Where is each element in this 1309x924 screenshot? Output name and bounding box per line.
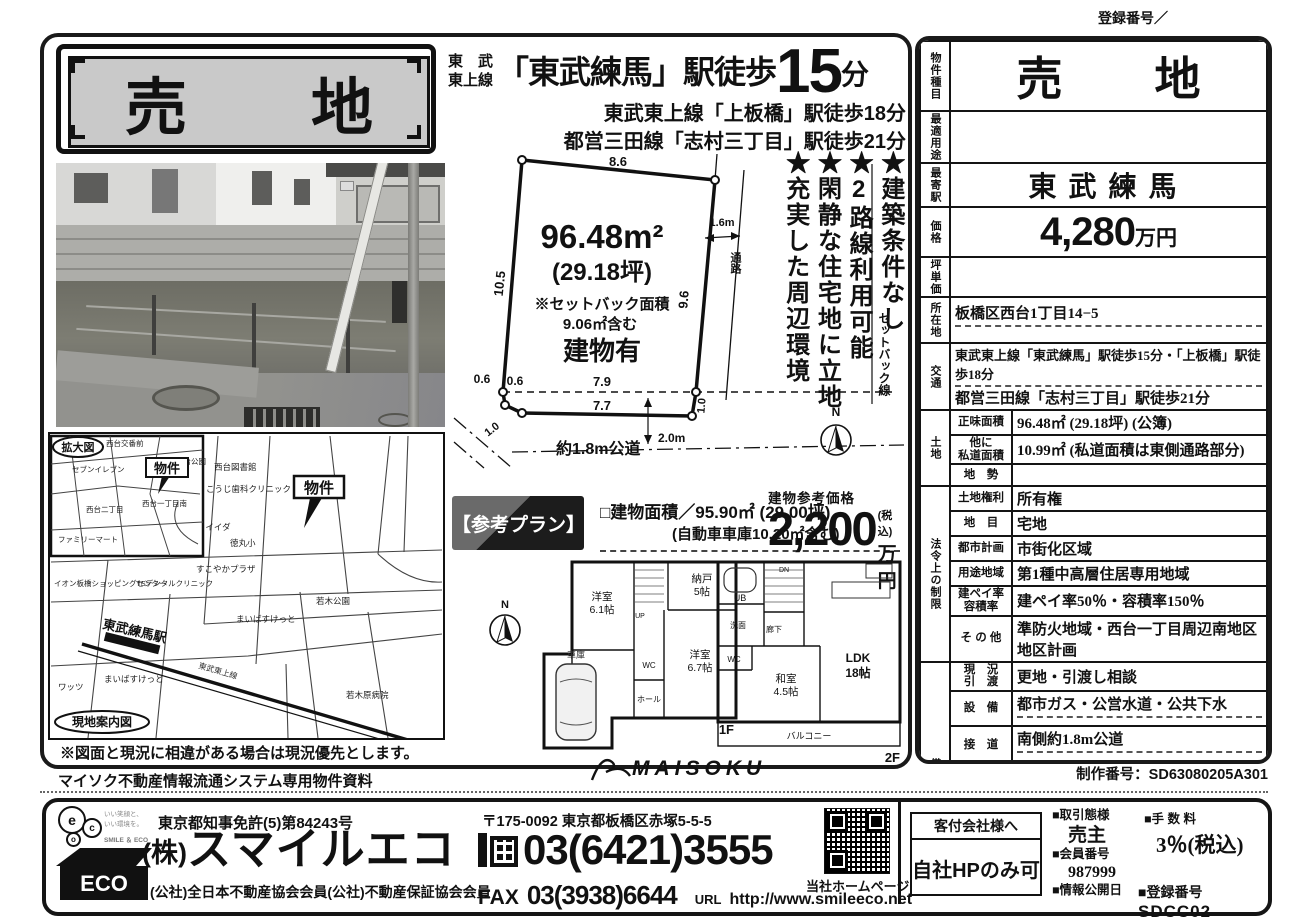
room-size-ldk: 18帖 [845, 665, 870, 680]
info-date-label: ■情報公開日 [1052, 883, 1122, 899]
svg-text:N: N [501, 599, 509, 611]
road-access-value: 南側約1.8m公道 [1012, 726, 1267, 764]
company-name: スマイルエコ [187, 828, 456, 872]
sub-label-terrain: 地 勢 [950, 464, 1012, 486]
map-label: まいばすけっと [104, 674, 164, 684]
room-size: 6.1帖 [589, 603, 615, 616]
land-category-value: 宅地 [1012, 511, 1267, 536]
dim-right-bottom: 1.0 [695, 398, 708, 414]
group-label-remarks: 備考 [920, 662, 950, 764]
terrain-value [1012, 464, 1267, 486]
dim-corner-2: 0.6 [507, 374, 524, 388]
map-label: 西台図書館 [214, 462, 257, 472]
photo-manhole [152, 385, 220, 411]
member-number-label: ■会員番号 [1052, 847, 1122, 863]
sub-label-net-area: 正味面積 [950, 410, 1012, 435]
broker-notice-box: 客付会社様へ 自社HPのみ可 [910, 812, 1042, 896]
dim-top: 8.6 [609, 154, 627, 169]
photo-drain-grate [244, 407, 320, 427]
cupboard [866, 564, 892, 578]
map-svg: 東武練馬駅 東武東上線 西台図書館 こうじ歯科クリニック コモディイイダ 西徳第… [48, 432, 445, 740]
current-status-value: 更地・引渡し相談 [1012, 662, 1267, 691]
fee-label: ■手 数 料 [1144, 808, 1244, 827]
registration-number-top: 登録番号／ [1098, 8, 1168, 28]
walk-minutes: 15 [776, 46, 841, 99]
floor-label-2f: 2F [885, 750, 900, 765]
photo-manhole-small [378, 413, 412, 427]
dim-setback: 7.9 [593, 374, 611, 389]
room-label-hall: ホール [637, 695, 661, 704]
photo-fence-post [152, 295, 156, 355]
photo-window [152, 169, 178, 213]
url-label: URL [695, 892, 722, 907]
fax-label: FAX [478, 886, 519, 910]
location-value: 板橋区西台1丁目14−5 [950, 297, 1267, 343]
sale-banner-plaque: 売 地 [68, 56, 430, 148]
registration-label: ■登録番号 [1138, 884, 1202, 900]
room-label-wc: WC [727, 655, 741, 664]
maisoku-mark [588, 752, 632, 786]
row-label-tsubo-price: 坪単価 [920, 257, 950, 297]
map-label: TSデンタルクリニック [136, 578, 213, 588]
company-logo: e c o いい笑顔と、 いい環境を。 SMILE ＆ ECO ECO [54, 806, 156, 904]
sub-label-legal-other: そ の 他 [950, 616, 1012, 662]
station-heading: 東 武 東上線 「東武練馬」駅徒歩 15 分 東武東上線「上板橋」駅徒歩18分 … [448, 46, 906, 155]
utilities-text: 都市ガス・公営水道・公共下水 [1017, 693, 1262, 718]
price-value: 4,280万円 [950, 207, 1267, 257]
floorplan-2f: UB DN 廊下 洗面 WC 和室 4.5帖 LDK 18帖 バルコニー 2F [710, 556, 908, 768]
logo-house-icon: ECO [54, 844, 154, 904]
city-planning-value: 市街化区域 [1012, 536, 1267, 561]
access-value: 東武東上線「東武練馬」駅徒歩15分・「上板橋」駅徒歩18分 都営三田線「志村三丁… [950, 343, 1267, 410]
photo-pole-box [392, 281, 407, 323]
road-label: 約1.8m公道 [556, 439, 640, 458]
maisoku-logo: MAISOKU [588, 752, 766, 786]
room-label: 洋室 [690, 648, 711, 661]
map-label: 若木原病院 [346, 690, 389, 700]
feature-4: ★充実した周辺環境 [779, 150, 810, 486]
room-label-ldk: LDK [846, 651, 871, 665]
passage-width: 1.6m [709, 217, 734, 229]
row-label-property-type: 物件種目 [920, 41, 950, 111]
road-width: 2.0m [658, 431, 685, 445]
broker-notice-value: 自社HPのみ可 [912, 840, 1040, 896]
photo-window [252, 171, 272, 205]
spec-table-frame: 物件種目 売 地 最適用途 最寄駅 東武練馬 価格 4,280万円 坪単価 [915, 36, 1272, 764]
feature-1: ★建築条件なし [874, 150, 905, 486]
map-label: 若木公園 [316, 596, 350, 606]
banner-corner-br [407, 125, 421, 139]
row-label-location: 所在地 [920, 297, 950, 343]
sub-label-land-rights: 土地権利 [950, 486, 1012, 511]
price-unit: 万円 [1135, 227, 1177, 250]
registration-value: SDCC02 [1138, 902, 1211, 921]
map-label: 西台二丁目 [86, 504, 124, 514]
map-label: こうじ歯科クリニック [206, 484, 291, 494]
property-marker-label-inset: 物件 [154, 461, 180, 476]
broker-notice-header: 客付会社様へ [912, 814, 1040, 840]
kitchen-counter [832, 582, 890, 598]
photo-utility-pole [408, 163, 419, 427]
room-label: 洋室 [592, 590, 613, 603]
map-label: 西台交番前 [106, 438, 144, 448]
property-marker-label: 物件 [304, 479, 334, 497]
site-photo [56, 163, 445, 427]
reference-plan-badge: 【参考プラン】 [452, 496, 584, 550]
railway-line-label: 東 武 東上線 [448, 53, 493, 99]
qr-finder-pattern [827, 811, 848, 832]
dim-left: 10.5 [491, 270, 509, 297]
price-number: 4,280 [1040, 210, 1135, 254]
photo-window [74, 173, 108, 203]
group-label-land: 土地 [920, 410, 950, 486]
map-label: まいばすけっと [236, 614, 296, 624]
plot-area: 96.48m² [541, 218, 664, 255]
map-label: ファミリーマート [58, 535, 118, 544]
building-price-tax: (税込) [878, 507, 906, 539]
row-label-nearest-station: 最寄駅 [920, 163, 950, 207]
logo-house-text: ECO [80, 871, 128, 896]
room-label-hallway: 廊下 [766, 624, 782, 634]
footer: e c o いい笑顔と、 いい環境を。 SMILE ＆ ECO ECO 東京都知… [42, 798, 1272, 916]
dotted-divider [40, 791, 1268, 793]
room-size-washitsu: 4.5帖 [773, 685, 799, 698]
feature-points: ★建築条件なし ★2路線利用可能 ★閑静な住宅地に立地 ★充実した周辺環境 [778, 150, 906, 486]
plot-setback-note-1: ※セットバック面積 [534, 295, 670, 313]
best-use-value [950, 111, 1267, 163]
floorplan-compass-icon: N [485, 596, 525, 652]
sub-label-utilities: 設 備 [950, 691, 1012, 726]
room-label-wash: 洗面 [730, 620, 746, 630]
guide-title: 現地案内図 [72, 714, 132, 729]
fax-number: 03(3938)6644 [527, 880, 677, 911]
access-line-1: 東武東上線「東武練馬」駅徒歩15分・「上板橋」駅徒歩18分 [955, 345, 1262, 387]
banner-corner-tr [407, 59, 421, 73]
road-access-text: 南側約1.8m公道 [1017, 728, 1262, 753]
photo-window [294, 179, 310, 205]
plot-building-note: 建物有 [563, 336, 641, 366]
footer-divider [898, 802, 901, 904]
map-label: すこやかプラザ [196, 564, 256, 574]
private-road-value: 10.99㎡ (私道面積は東側通路部分) [1012, 435, 1267, 464]
zoning-value: 第1種中高層住居専用地域 [1012, 561, 1267, 586]
room-label-ub: UB [734, 593, 747, 603]
sub-label-city-planning: 都市計画 [950, 536, 1012, 561]
sale-banner: 売 地 [56, 44, 436, 154]
location-text: 板橋区西台1丁目14−5 [955, 302, 1262, 327]
production-number: 制作番号：SD63080205A301 [1076, 763, 1268, 784]
discrepancy-note: ※図面と現況に相違がある場合は現況優先とします。 [60, 742, 419, 763]
row-label-price: 価格 [920, 207, 950, 257]
building-price: 2,200 [768, 507, 876, 552]
phone-number: 03(6421)3555 [523, 829, 773, 871]
feature-2: ★2路線利用可能 [842, 150, 873, 486]
dim-left-bottom: 1.0 [482, 420, 501, 439]
qr-caption: 当社ホームページ [806, 876, 909, 895]
row-label-access: 交通 [920, 343, 950, 410]
company-name-row: (株) スマイルエコ [142, 828, 456, 872]
tsubo-price-value [950, 257, 1267, 297]
fee-column: ■手 数 料 3％(税込) [1144, 808, 1244, 859]
sub-label-coverage-ratio: 建ペイ率 容積率 [950, 586, 1012, 615]
photo-fence-post [252, 303, 256, 369]
dim-bottom: 7.7 [593, 398, 611, 413]
banner-corner-bl [71, 125, 85, 139]
association-membership: (公社)全日本不動産協会会員(公社)不動産保証協会会員 [150, 882, 491, 902]
car-icon [556, 664, 596, 740]
maisoku-wordmark: MAISOKU [632, 757, 766, 781]
qr-code [824, 808, 890, 874]
photo-block-wall [56, 225, 445, 283]
inset-title: 拡大図 [62, 440, 95, 454]
banner-corner-tl [71, 59, 85, 73]
stairs-down-label: DN [779, 567, 789, 574]
nearest-station-value: 東武練馬 [950, 163, 1267, 207]
legal-other-value: 準防火地域・西台一丁目周辺南地区地区計画 [1012, 616, 1267, 662]
spec-table: 物件種目 売 地 最適用途 最寄駅 東武練馬 価格 4,280万円 坪単価 [919, 40, 1268, 764]
flyer-page: 登録番号／ 売 地 東 武 東上線 「東武練馬」駅徒歩 15 分 東武東上線「上… [0, 0, 1309, 924]
passage-label: 通路 [729, 252, 742, 275]
dim-corner-1: 0.6 [474, 372, 491, 386]
room-label-garage: 車庫 [567, 649, 585, 660]
deal-type-label: ■取引態様 [1052, 808, 1122, 824]
qr-finder-pattern [827, 850, 848, 871]
access-line-2: 都営三田線「志村三丁目」駅徒歩21分 [955, 387, 1262, 408]
sub-label-zoning: 用途地域 [950, 561, 1012, 586]
utilities-value: 都市ガス・公営水道・公共下水 [1012, 691, 1267, 726]
land-rights-value: 所有権 [1012, 486, 1267, 511]
plot-setback-note-2: 9.06㎡含む [563, 315, 637, 333]
company-mark: (株) [142, 831, 187, 870]
sub-label-private-road: 他に 私道面積 [950, 435, 1012, 464]
phone-icon [478, 833, 518, 867]
map-label: 西台一丁目南 [142, 498, 187, 508]
photo-ac-unit [340, 181, 354, 191]
map-label: セブンイレブン [72, 464, 125, 474]
maisoku-system-note: マイソク不動産情報流通システム専用物件資料 [58, 770, 373, 791]
room-label-washitsu: 和室 [776, 672, 797, 685]
row-label-best-use: 最適用途 [920, 111, 950, 163]
coverage-ratio-value: 建ペイ率50％・容積率150％ [1012, 586, 1267, 615]
map-label: ワッツ [58, 682, 84, 692]
room-size: 5帖 [694, 585, 711, 598]
fee-value: 3％(税込) [1144, 829, 1244, 859]
station-walk-label: 「東武練馬」駅徒歩 [497, 47, 776, 99]
property-type-value: 売 地 [950, 41, 1267, 111]
logo-bubble-c: c [82, 818, 102, 838]
sub-label-current-status: 現 況 引 渡 [950, 662, 1012, 691]
stairs-up-label: UP [635, 613, 645, 620]
deal-info-column: ■取引態様 売主 ■会員番号 987999 ■情報公開日 [1052, 808, 1122, 899]
phone-row: 03(6421)3555 [478, 829, 773, 871]
room-label-wc: WC [642, 661, 656, 670]
walk-minutes-unit: 分 [841, 53, 869, 99]
sub-label-road-access: 接 道 [950, 726, 1012, 764]
feature-3: ★閑静な住宅地に立地 [811, 150, 842, 486]
qr-finder-pattern [866, 811, 887, 832]
sub-label-land-category: 地 目 [950, 511, 1012, 536]
dim-right: 9.6 [675, 290, 692, 309]
deal-type-value: 売主 [1052, 824, 1122, 848]
station-sub-line-1: 東武東上線「上板橋」駅徒歩18分 [448, 101, 906, 127]
group-label-legal: 法令上の制限 [920, 486, 950, 661]
registration-row: ■登録番号 SDCC02 [1138, 882, 1268, 922]
net-area-value: 96.48㎡ (29.18坪) (公簿) [1012, 410, 1267, 435]
bathtub-icon [724, 568, 756, 592]
member-number-value: 987999 [1052, 863, 1122, 883]
area-map: 東武練馬駅 東武東上線 西台図書館 こうじ歯科クリニック コモディイイダ 西徳第… [48, 432, 445, 740]
logo-tagline: いい笑顔と、 いい環境を。 [104, 810, 143, 830]
map-label: 徳丸小 [230, 538, 256, 548]
plot-area-tsubo: (29.18坪) [552, 259, 652, 286]
balcony-label: バルコニー [787, 731, 832, 741]
